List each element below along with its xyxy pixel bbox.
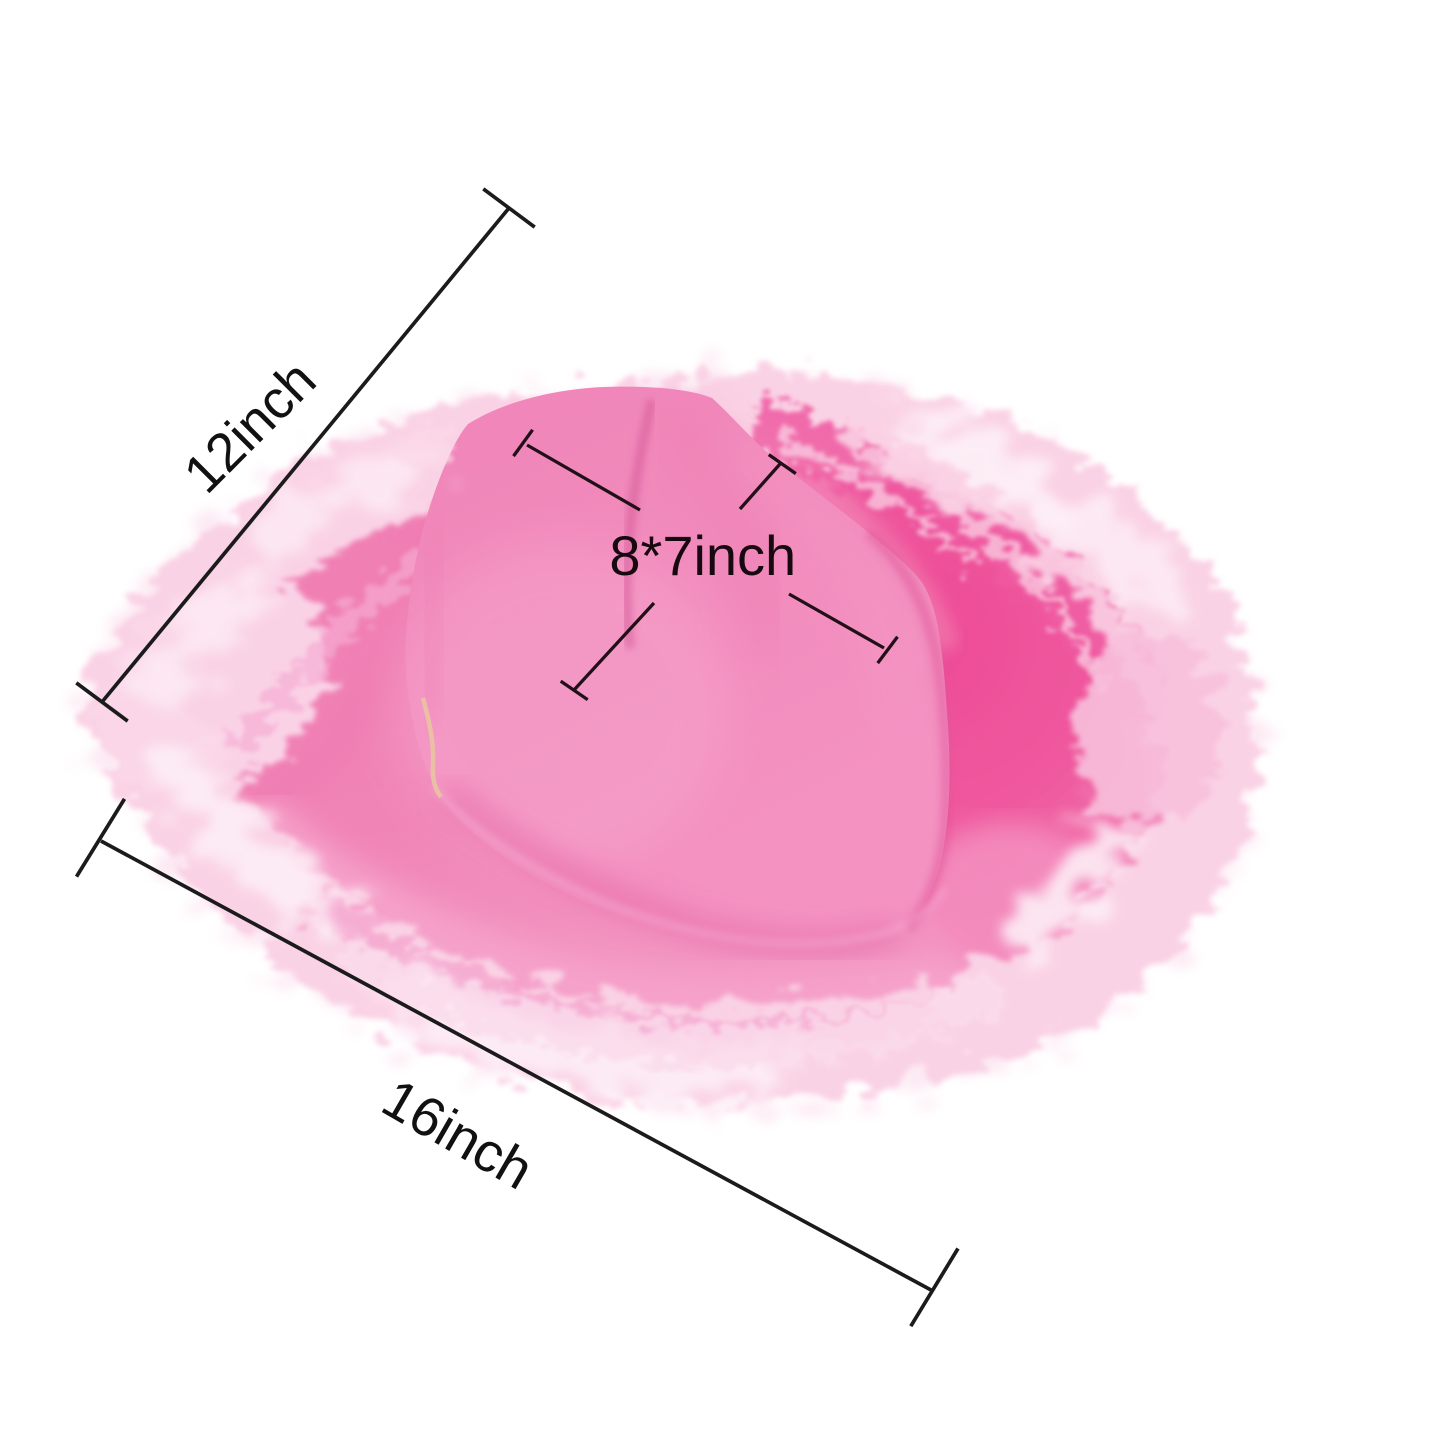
svg-text:8*7inch: 8*7inch	[609, 524, 796, 587]
